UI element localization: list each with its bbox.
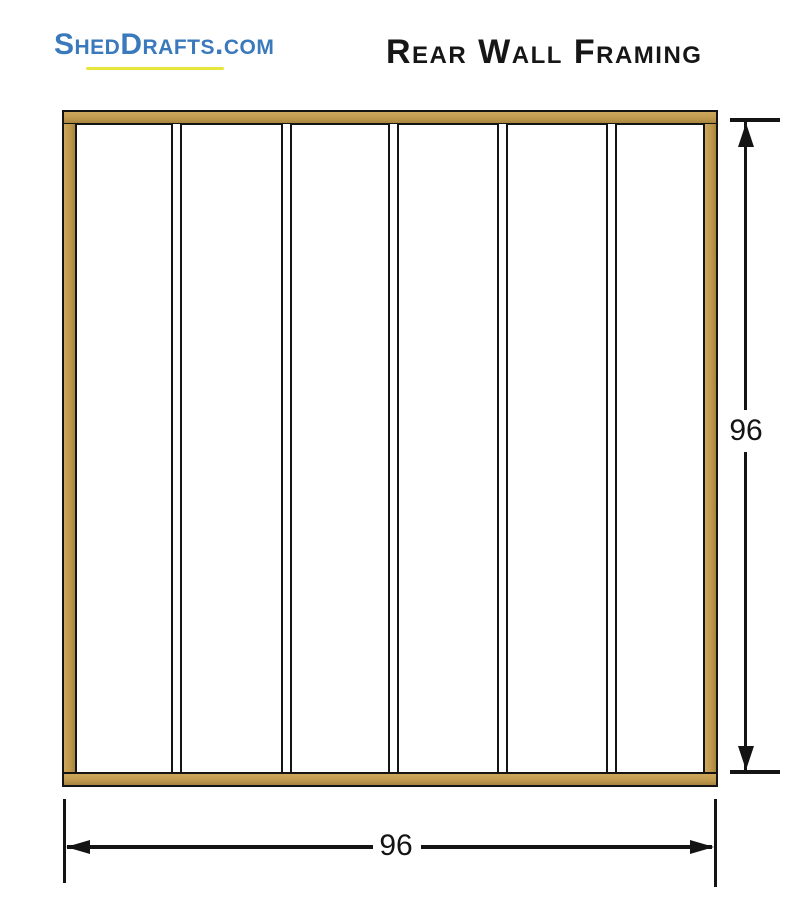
height-dim-top-tick bbox=[730, 118, 780, 122]
height-dim-line-lower bbox=[744, 452, 747, 770]
stud-1 bbox=[171, 124, 182, 772]
height-dim-line-upper bbox=[744, 122, 747, 410]
framing-plan-page: ShedDrafts.com Rear Wall Framing 96 96 bbox=[0, 0, 800, 924]
drawing-title: Rear Wall Framing bbox=[386, 33, 702, 72]
sheddrafts-logo: ShedDrafts.com bbox=[54, 28, 274, 62]
stud-5 bbox=[606, 124, 617, 772]
top-plate bbox=[62, 110, 718, 125]
width-dim-arrow-right-icon bbox=[690, 840, 714, 854]
end-stud-right bbox=[703, 124, 718, 772]
width-dim-line-right bbox=[421, 845, 712, 849]
height-dim-arrow-down-icon bbox=[738, 746, 754, 770]
height-dim-arrow-up-icon bbox=[738, 123, 754, 147]
height-dim-bottom-tick bbox=[730, 770, 780, 774]
width-dim-arrow-left-icon bbox=[66, 840, 90, 854]
height-dimension-value: 96 bbox=[721, 416, 771, 446]
stud-3 bbox=[388, 124, 399, 772]
width-dim-line-left bbox=[67, 845, 373, 849]
width-dimension-value: 96 bbox=[371, 831, 421, 861]
stud-2 bbox=[281, 124, 292, 772]
logo-underline bbox=[86, 67, 224, 70]
width-dim-right-extension bbox=[714, 799, 717, 887]
bottom-plate bbox=[62, 772, 718, 787]
stud-4 bbox=[497, 124, 508, 772]
end-stud-left bbox=[62, 124, 77, 772]
